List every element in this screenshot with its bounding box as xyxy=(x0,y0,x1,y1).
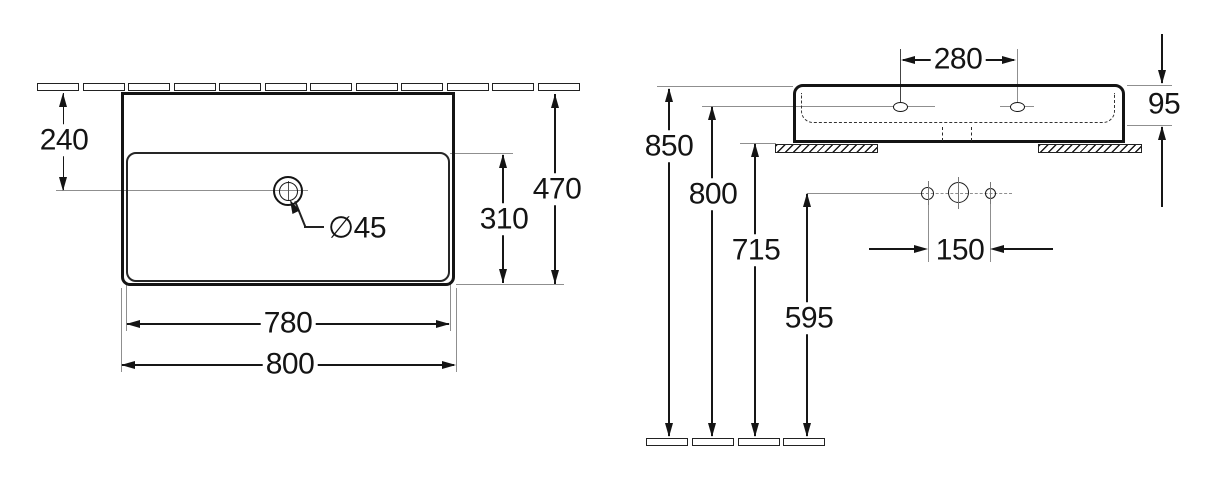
extension-line xyxy=(928,201,929,262)
arrowhead xyxy=(59,177,67,191)
arrowhead xyxy=(499,154,507,168)
centerline-tick xyxy=(958,177,959,209)
arrowhead xyxy=(708,106,716,120)
arrowhead xyxy=(803,423,811,437)
extension-line xyxy=(990,200,991,262)
dim-label-tap-height: 800 xyxy=(686,178,741,210)
dim-label-underside-height: 715 xyxy=(729,234,784,266)
extension-line xyxy=(1127,85,1172,86)
arrowhead xyxy=(990,245,1004,253)
arrowhead xyxy=(803,193,811,207)
extension-line xyxy=(456,284,564,285)
mounting-pad xyxy=(1038,144,1142,153)
arrowhead xyxy=(914,245,928,253)
dim-label-bowl-width: 780 xyxy=(261,307,316,339)
wall-tile xyxy=(492,83,534,91)
dim-label-body-height: 95 xyxy=(1145,88,1183,120)
tap-hole xyxy=(893,102,908,112)
arrowhead xyxy=(751,423,759,437)
arrowhead xyxy=(1002,56,1016,64)
arrowhead xyxy=(126,320,140,328)
dim-label-bowl-depth: 310 xyxy=(477,203,532,235)
basin-inner-dashed-outline xyxy=(801,93,1115,123)
dimension-line xyxy=(711,107,713,436)
wall-tile xyxy=(174,83,216,91)
technical-drawing-canvas: ∅45 240 470 310 780 800 280 xyxy=(0,0,1212,491)
arrowhead xyxy=(551,94,559,108)
arrowhead xyxy=(708,423,716,437)
tap-hole xyxy=(1010,102,1025,112)
dimension-line xyxy=(869,248,915,250)
floor-tile xyxy=(738,438,780,446)
dimension-line xyxy=(1004,248,1053,250)
dim-label-fixing-height: 595 xyxy=(782,302,837,334)
wall-tile xyxy=(265,83,307,91)
arrowhead xyxy=(499,269,507,283)
wall-tile xyxy=(538,83,580,91)
arrowhead xyxy=(665,423,673,437)
drain-dashed-line xyxy=(942,127,943,141)
drain-dashed-line xyxy=(971,127,972,141)
arrowhead xyxy=(121,361,135,369)
wall-tile xyxy=(219,83,261,91)
wall-tile xyxy=(310,83,352,91)
wall-tile xyxy=(401,83,443,91)
dim-label-depth: 470 xyxy=(530,173,585,205)
mounting-pad xyxy=(775,144,878,153)
extension-line xyxy=(657,86,793,87)
arrowhead xyxy=(1158,70,1166,84)
arrowhead xyxy=(665,88,673,102)
dim-label-rim-height: 850 xyxy=(642,130,697,162)
extension-line xyxy=(121,288,122,372)
dim-label-fixing-spacing: 150 xyxy=(933,234,988,266)
centerline-tick xyxy=(928,181,929,205)
arrowhead xyxy=(901,56,915,64)
floor-tile xyxy=(692,438,734,446)
dimension-line xyxy=(754,144,756,436)
arrowhead xyxy=(59,93,67,107)
basin-bowl-outline xyxy=(126,152,450,282)
arrowhead xyxy=(436,320,450,328)
arrowhead xyxy=(1158,126,1166,140)
wall-tile xyxy=(128,83,170,91)
floor-tile xyxy=(646,438,688,446)
arrowhead xyxy=(551,270,559,284)
floor-tile xyxy=(783,438,825,446)
wall-tile xyxy=(447,83,489,91)
arrowhead xyxy=(442,361,456,369)
wall-tile xyxy=(83,83,125,91)
wall-tile xyxy=(37,83,79,91)
wall-tile xyxy=(356,83,398,91)
centerline xyxy=(807,193,921,194)
dim-label-drain-diameter: ∅45 xyxy=(326,212,388,244)
arrowhead xyxy=(751,143,759,157)
leader-line xyxy=(304,226,324,228)
dim-label-tap-spacing: 280 xyxy=(931,43,986,75)
dim-label-setback: 240 xyxy=(37,124,92,156)
extension-line xyxy=(456,288,457,372)
centerline-tick xyxy=(990,182,991,204)
dim-label-width: 800 xyxy=(263,348,318,380)
drain-hole-inner xyxy=(279,182,298,201)
